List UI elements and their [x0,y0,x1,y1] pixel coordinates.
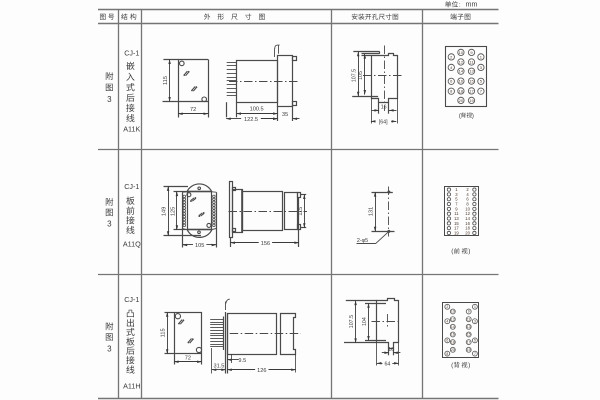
svg-text:18: 18 [459,88,464,93]
svg-text:10: 10 [451,310,455,314]
svg-text:16: 16 [459,78,464,83]
svg-text:CJ-1: CJ-1 [124,295,139,304]
svg-text:): ) [468,362,470,369]
svg-text:20: 20 [451,348,455,352]
svg-text:3: 3 [480,65,483,70]
svg-text:31.5: 31.5 [213,364,224,370]
svg-text:16: 16 [451,333,455,337]
svg-text:A11H: A11H [123,381,140,390]
svg-text:3: 3 [474,319,476,323]
svg-text:149: 149 [162,207,168,216]
svg-text:CJ-1: CJ-1 [124,182,139,191]
svg-text:3: 3 [107,345,112,354]
svg-text:105: 105 [195,243,204,249]
svg-text:): ) [472,113,474,119]
svg-text:64: 64 [384,361,390,367]
svg-text:16: 16 [381,104,387,110]
svg-text:13: 13 [467,325,471,329]
svg-text:20: 20 [465,230,470,235]
svg-text:16: 16 [388,347,394,353]
svg-text:(: ( [451,362,454,369]
svg-text:104: 104 [362,317,368,326]
svg-text:14: 14 [451,325,455,329]
svg-text:12: 12 [459,59,464,64]
svg-text:8: 8 [450,89,453,94]
svg-text:107.5: 107.5 [349,315,355,328]
svg-text:100.5: 100.5 [250,107,264,113]
svg-text:8: 8 [446,352,448,356]
svg-text:5: 5 [474,339,476,343]
svg-text:6: 6 [450,79,453,84]
svg-text:6: 6 [446,339,448,343]
svg-text:15: 15 [469,78,474,83]
svg-text:17: 17 [469,88,474,93]
svg-text:10: 10 [459,50,464,55]
svg-text:107.5: 107.5 [352,69,358,82]
svg-text:125: 125 [170,207,176,216]
svg-text:19: 19 [467,348,471,352]
svg-text:72: 72 [190,107,196,113]
svg-text:13: 13 [469,69,474,74]
svg-text:115: 115 [161,328,167,337]
svg-text:18: 18 [451,340,455,344]
svg-text:2-φ5: 2-φ5 [357,238,368,244]
svg-text:4: 4 [450,65,453,70]
svg-text:12: 12 [451,317,455,321]
svg-text:1: 1 [474,305,476,309]
svg-text:14: 14 [459,69,464,74]
svg-text:3: 3 [107,219,112,228]
svg-text:): ) [468,248,470,255]
svg-text:7: 7 [474,352,476,356]
svg-text:122.5: 122.5 [244,117,258,123]
svg-text:2: 2 [446,305,448,309]
svg-text:35: 35 [282,112,288,118]
svg-text:17: 17 [467,340,471,344]
svg-text:7: 7 [480,89,483,94]
svg-text:3: 3 [107,95,112,104]
svg-text:19: 19 [454,230,459,235]
svg-text:131: 131 [369,207,375,216]
svg-text:72: 72 [185,356,191,362]
svg-text:115: 115 [163,76,169,85]
svg-text:9.5: 9.5 [238,358,246,364]
svg-text:1: 1 [480,54,483,59]
svg-text:9: 9 [470,50,473,55]
svg-text:19: 19 [469,98,474,103]
svg-text:(: ( [451,248,454,255]
svg-text:A11K: A11K [123,125,140,134]
svg-text:20: 20 [459,98,464,103]
svg-text::: : [459,2,461,9]
svg-text:105: 105 [358,71,364,80]
svg-text:11: 11 [467,317,471,321]
svg-text:mm: mm [466,2,478,9]
svg-text:(: ( [459,113,461,119]
svg-text:9: 9 [468,310,470,314]
svg-text:CJ-1: CJ-1 [124,49,139,58]
svg-text:5: 5 [480,79,483,84]
svg-text:15: 15 [467,333,471,337]
svg-text:4: 4 [446,319,448,323]
svg-text:[64]: [64] [379,119,388,125]
svg-text:126: 126 [257,368,266,374]
svg-text:156: 156 [261,241,270,247]
svg-text:A11Q: A11Q [123,239,141,248]
svg-text:2: 2 [450,54,453,59]
